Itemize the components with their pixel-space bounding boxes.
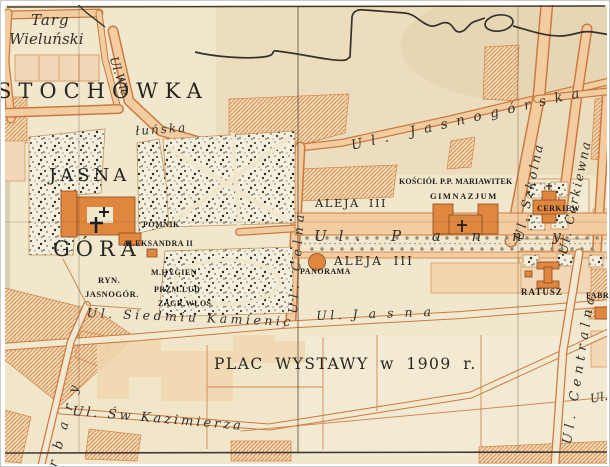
zagr-wlos-label: ZAGR.WŁOŚ: [158, 300, 212, 308]
cerkiew-label: CERKIEW: [537, 205, 580, 213]
street-edge-label-fragment: Ul.: [589, 390, 609, 405]
kosciol-mariawitek-label: KOŚCIÓŁ P.P. MARIAWITEK: [399, 178, 512, 186]
gimnazjum-label: GIMNAZJUM: [430, 192, 498, 201]
ratusz-label: RATUSZ: [521, 288, 563, 297]
map-image: Targ Wieluński STOCHÓWKA JASNA GÓRA Ul.W…: [0, 0, 610, 467]
street-panny-label: Ul. P a n n y: [314, 229, 573, 244]
monastery-tower: [61, 191, 77, 237]
district-jasna-label: JASNA: [49, 167, 130, 185]
aleja-iii-south-label: ALEJA III: [334, 255, 414, 267]
przm-lud-label: PRZM.LUD: [154, 286, 200, 294]
district-czestochowka-label: STOCHÓWKA: [0, 81, 209, 102]
rynek-label-line1: RYN.: [98, 276, 120, 285]
panorama-label: PANORAMA: [300, 268, 351, 276]
m-hygien-label: M.HYGIEN: [151, 269, 197, 277]
aleksandra-label: ALEKSANDRA II: [123, 240, 193, 248]
targ-wielunski-label-line1: Targ: [31, 13, 70, 28]
street-wielunska-label-lower: łuńska: [135, 121, 188, 137]
aleja-iii-north-label: ALEJA III: [315, 198, 387, 210]
targ-wielunski-label-line2: Wieluński: [9, 32, 84, 47]
plac-wystawy-label: PLAC WYSTAWY w 1909 r.: [214, 357, 477, 373]
pomnik-label: POMNIK: [143, 221, 180, 229]
fabr-label-fragment: FABR: [586, 292, 609, 300]
rynek-label-line2: JASNOGÓR.: [85, 290, 139, 299]
